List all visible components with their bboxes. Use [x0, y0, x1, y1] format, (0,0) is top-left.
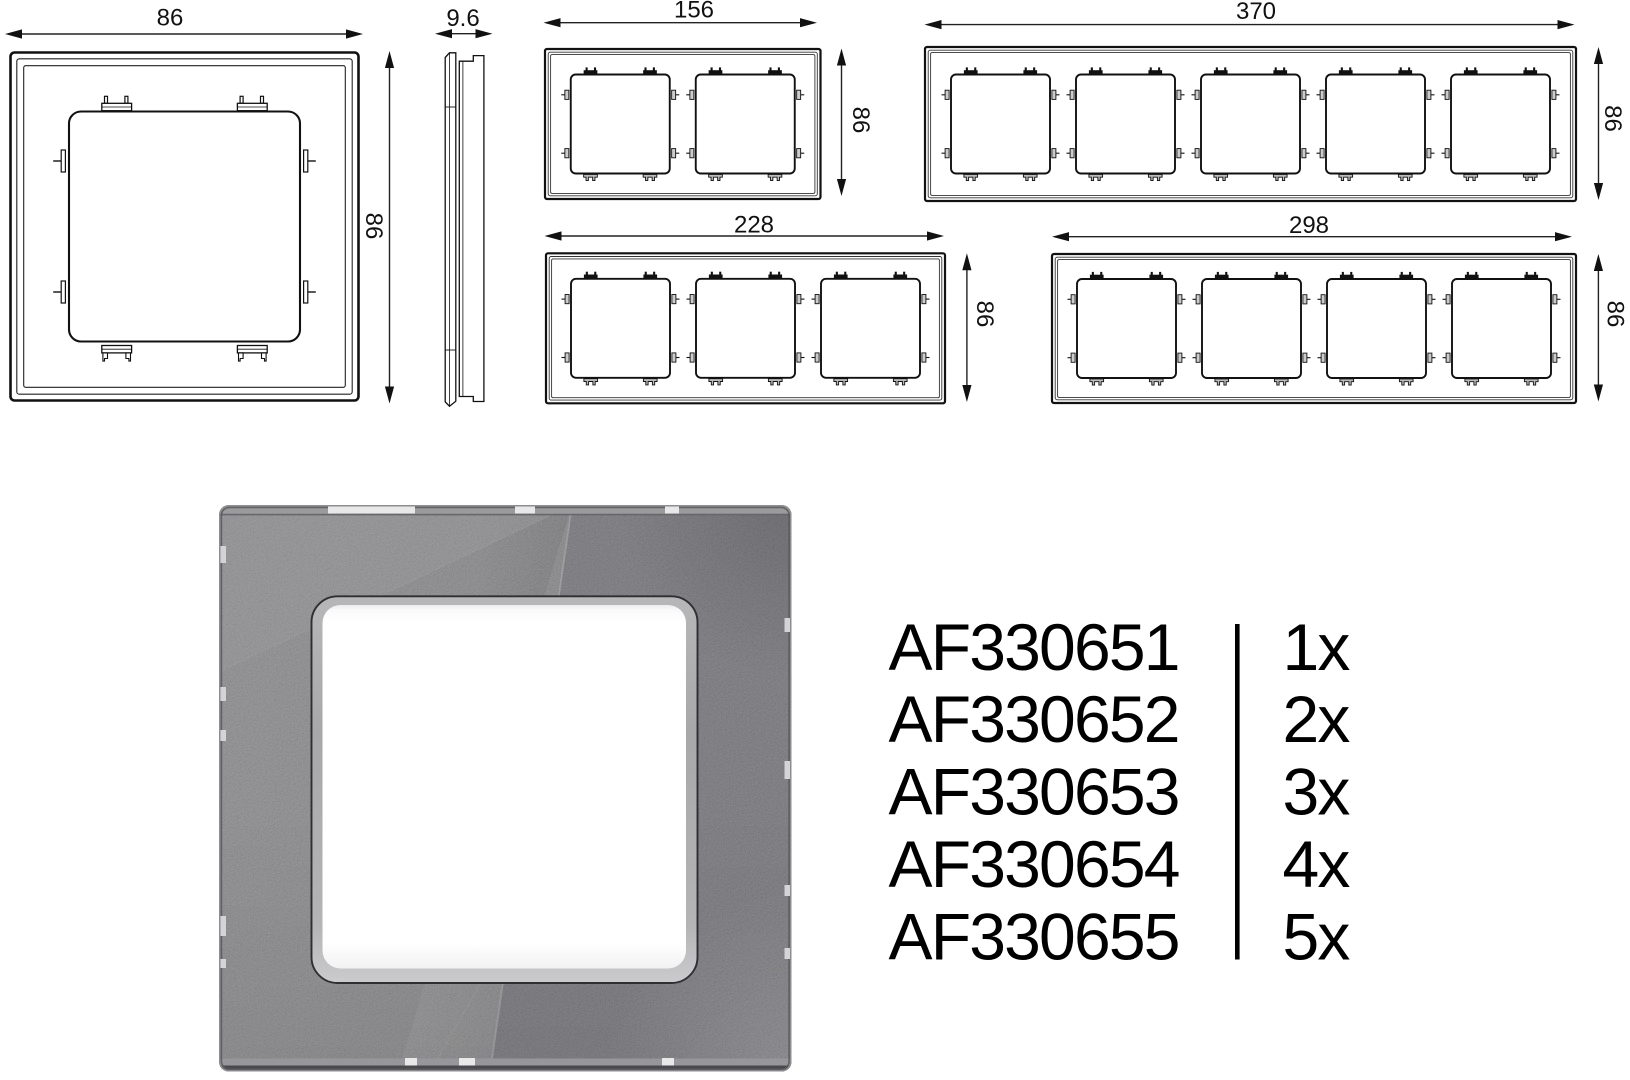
- svg-text:AF330651: AF330651: [889, 610, 1179, 684]
- svg-text:228: 228: [734, 212, 774, 239]
- svg-text:86: 86: [971, 301, 998, 328]
- svg-text:156: 156: [674, 0, 714, 24]
- svg-text:2x: 2x: [1283, 682, 1351, 756]
- svg-text:5x: 5x: [1283, 899, 1351, 973]
- svg-text:1x: 1x: [1283, 610, 1351, 684]
- svg-text:AF330654: AF330654: [889, 827, 1179, 901]
- svg-text:86: 86: [847, 107, 874, 134]
- svg-text:3x: 3x: [1283, 755, 1351, 829]
- svg-text:AF330653: AF330653: [889, 755, 1179, 829]
- svg-text:370: 370: [1236, 0, 1276, 25]
- svg-text:86: 86: [1602, 301, 1629, 328]
- svg-text:86: 86: [1599, 105, 1626, 132]
- svg-text:4x: 4x: [1283, 827, 1351, 901]
- svg-text:9.6: 9.6: [446, 5, 479, 32]
- svg-text:86: 86: [157, 5, 184, 32]
- svg-text:86: 86: [360, 213, 387, 240]
- svg-text:AF330652: AF330652: [889, 682, 1179, 756]
- svg-text:AF330655: AF330655: [889, 899, 1179, 973]
- svg-text:298: 298: [1289, 212, 1329, 239]
